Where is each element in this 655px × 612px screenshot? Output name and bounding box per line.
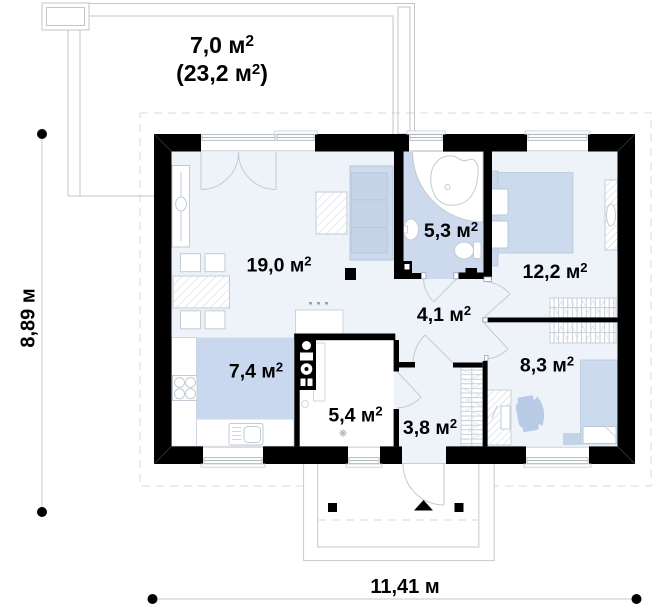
svg-text:12,2 м2: 12,2 м2 xyxy=(522,260,587,283)
svg-text:7,4 м2: 7,4 м2 xyxy=(229,360,283,383)
svg-text:5,3 м2: 5,3 м2 xyxy=(424,219,478,242)
svg-text:5,4 м2: 5,4 м2 xyxy=(328,404,382,427)
svg-text:8,89 м: 8,89 м xyxy=(18,288,40,347)
svg-text:11,41 м: 11,41 м xyxy=(370,576,439,598)
svg-text:7,0 м2: 7,0 м2 xyxy=(190,32,254,58)
svg-text:8,3 м2: 8,3 м2 xyxy=(520,354,574,377)
svg-text:3,8 м2: 3,8 м2 xyxy=(403,416,457,439)
svg-text:19,0 м2: 19,0 м2 xyxy=(246,254,311,277)
svg-text:4,1 м2: 4,1 м2 xyxy=(417,303,471,326)
